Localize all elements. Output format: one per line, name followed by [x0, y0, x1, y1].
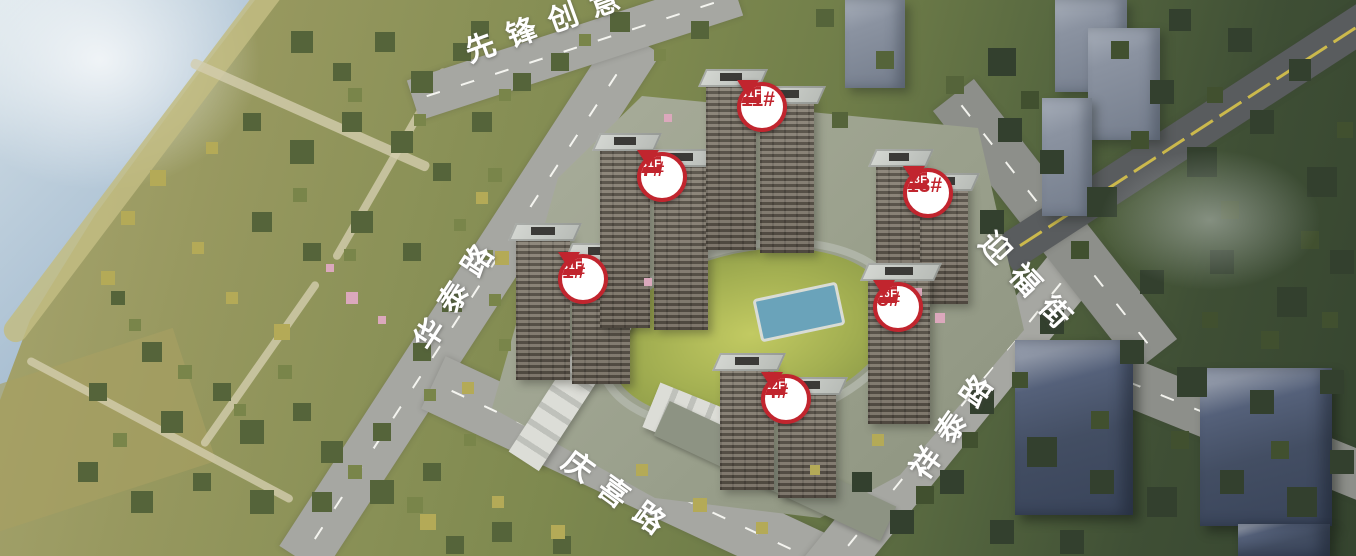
site-plan-map: 先锋创意 华泰路 迎福街 祥泰路 庆喜路 1# 31F 4# 22F 7# 31… [0, 0, 1356, 556]
city-building [1088, 28, 1160, 140]
city-building-dark [1200, 368, 1332, 526]
marker-pointer [873, 280, 895, 297]
fog-patch [1100, 150, 1320, 290]
marker-pointer [737, 80, 759, 97]
marker-pointer [761, 372, 783, 389]
city-building [1042, 98, 1092, 216]
marker-pointer [903, 166, 925, 183]
city-building [845, 0, 905, 88]
marker-pointer [637, 150, 659, 167]
park-path [199, 280, 320, 448]
city-building-dark [1015, 340, 1133, 515]
city-building-dark [1238, 524, 1330, 556]
marker-pointer [558, 252, 580, 269]
